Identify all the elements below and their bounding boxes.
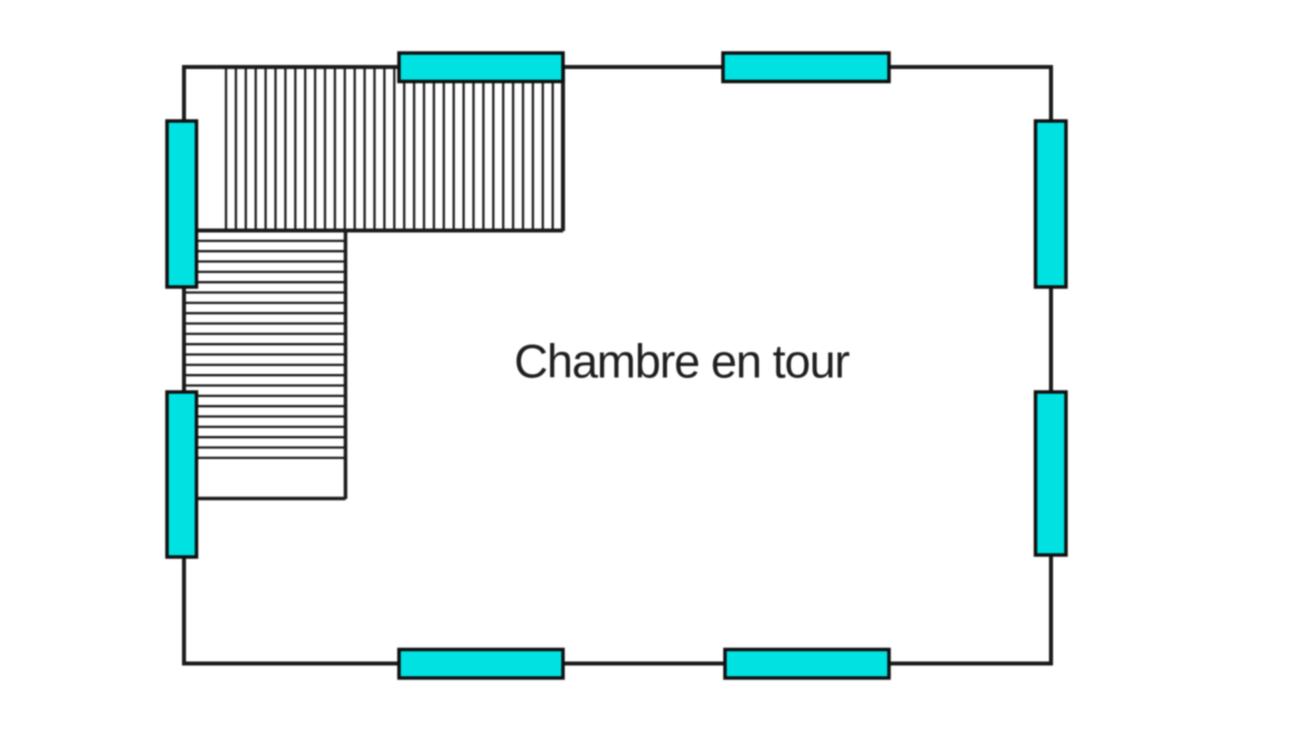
- svg-text:Chambre en tour: Chambre en tour: [514, 335, 849, 388]
